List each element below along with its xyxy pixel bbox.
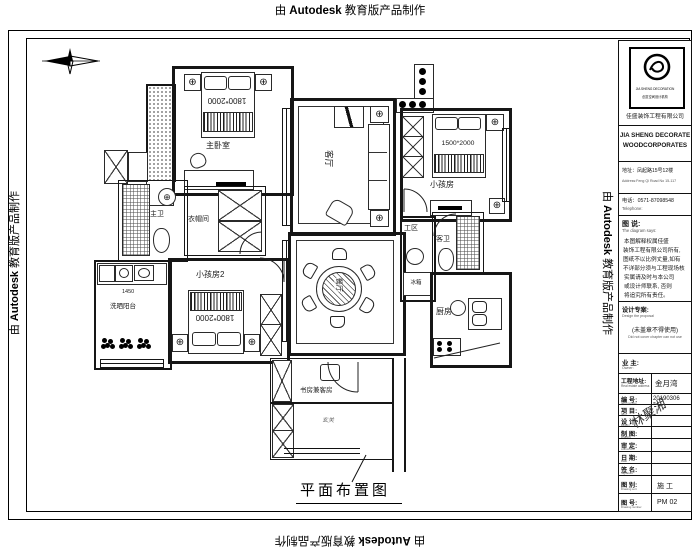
logo-subtext: JIA SHENG DECORATION bbox=[631, 87, 679, 91]
divider bbox=[619, 438, 691, 439]
divider bbox=[619, 475, 691, 476]
design-label: 设计专案: bbox=[622, 305, 649, 314]
notes-line: 或设计师联系, 否则 bbox=[624, 282, 672, 290]
title-block: JIA SHENG DECORATION 创意空间设计机构 佳盛装饰工程有限公司… bbox=[618, 40, 692, 512]
company-address-cn: 地址：凤起路15号12楼 bbox=[622, 167, 673, 174]
company-name-en: WOODCORPORATES bbox=[619, 142, 691, 149]
divider bbox=[619, 193, 691, 194]
divider bbox=[619, 215, 691, 216]
site-value: 金月湾 bbox=[655, 378, 678, 389]
row-value: 施 工 bbox=[657, 481, 673, 491]
row-sub: Drawing number bbox=[621, 505, 642, 509]
divider bbox=[619, 353, 691, 354]
site-sub: Real estate address bbox=[621, 384, 649, 388]
row-sub: Drawing sort bbox=[621, 487, 637, 491]
notes-line: 实属请及时与本公司 bbox=[624, 273, 674, 281]
drawing-sheet: 由Autodesk教育版产品制作 由Autodesk教育版产品制作 由Autod… bbox=[0, 0, 700, 560]
company-name-en: JIA SHENG DECORATE bbox=[619, 132, 691, 139]
stamp-note: (未盖章不得使用) bbox=[619, 325, 691, 334]
plan-title-underline bbox=[296, 503, 402, 504]
divider bbox=[619, 301, 691, 302]
company-phone-en: Telephone: bbox=[622, 206, 643, 211]
company-logo-box: JIA SHENG DECORATION 创意空间设计机构 bbox=[629, 47, 685, 109]
notes-line: 装饰工程有限公司所有, bbox=[623, 246, 681, 254]
divider bbox=[619, 393, 691, 394]
notes-line: 图纸不以比例丈量,如有 bbox=[623, 255, 681, 263]
design-sub: Design the proposal bbox=[622, 314, 654, 318]
divider bbox=[619, 426, 691, 427]
notes-line: 不详部分须与工程现场核 bbox=[623, 264, 685, 272]
notes-line: 将追究所有责任。 bbox=[624, 291, 669, 299]
notes-line: 本图解释权属佳盛 bbox=[624, 237, 669, 245]
divider bbox=[619, 373, 691, 374]
divider bbox=[619, 463, 691, 464]
divider bbox=[619, 161, 691, 162]
plan-title: 平面布置图 bbox=[300, 483, 390, 500]
divider bbox=[619, 451, 691, 452]
logo-subtext: 创意空间设计机构 bbox=[631, 94, 679, 99]
owner-sub: Owner: bbox=[622, 366, 634, 370]
row-value: PM 02 bbox=[657, 499, 677, 506]
divider bbox=[619, 125, 691, 126]
notes-subtitle: The diagram says: bbox=[622, 228, 656, 233]
company-phone-cn: 电话：0571-87098548 bbox=[622, 197, 674, 204]
company-name-cn: 佳盛装饰工程有限公司 bbox=[619, 111, 691, 120]
stamp-note-en: Did not cover chapter can not use bbox=[619, 335, 691, 339]
company-address-en: Address:Feng Qi Road No 15-117 bbox=[622, 179, 676, 183]
doors-and-leader-lines bbox=[0, 0, 700, 560]
divider bbox=[619, 493, 691, 494]
company-logo-icon bbox=[642, 52, 672, 82]
